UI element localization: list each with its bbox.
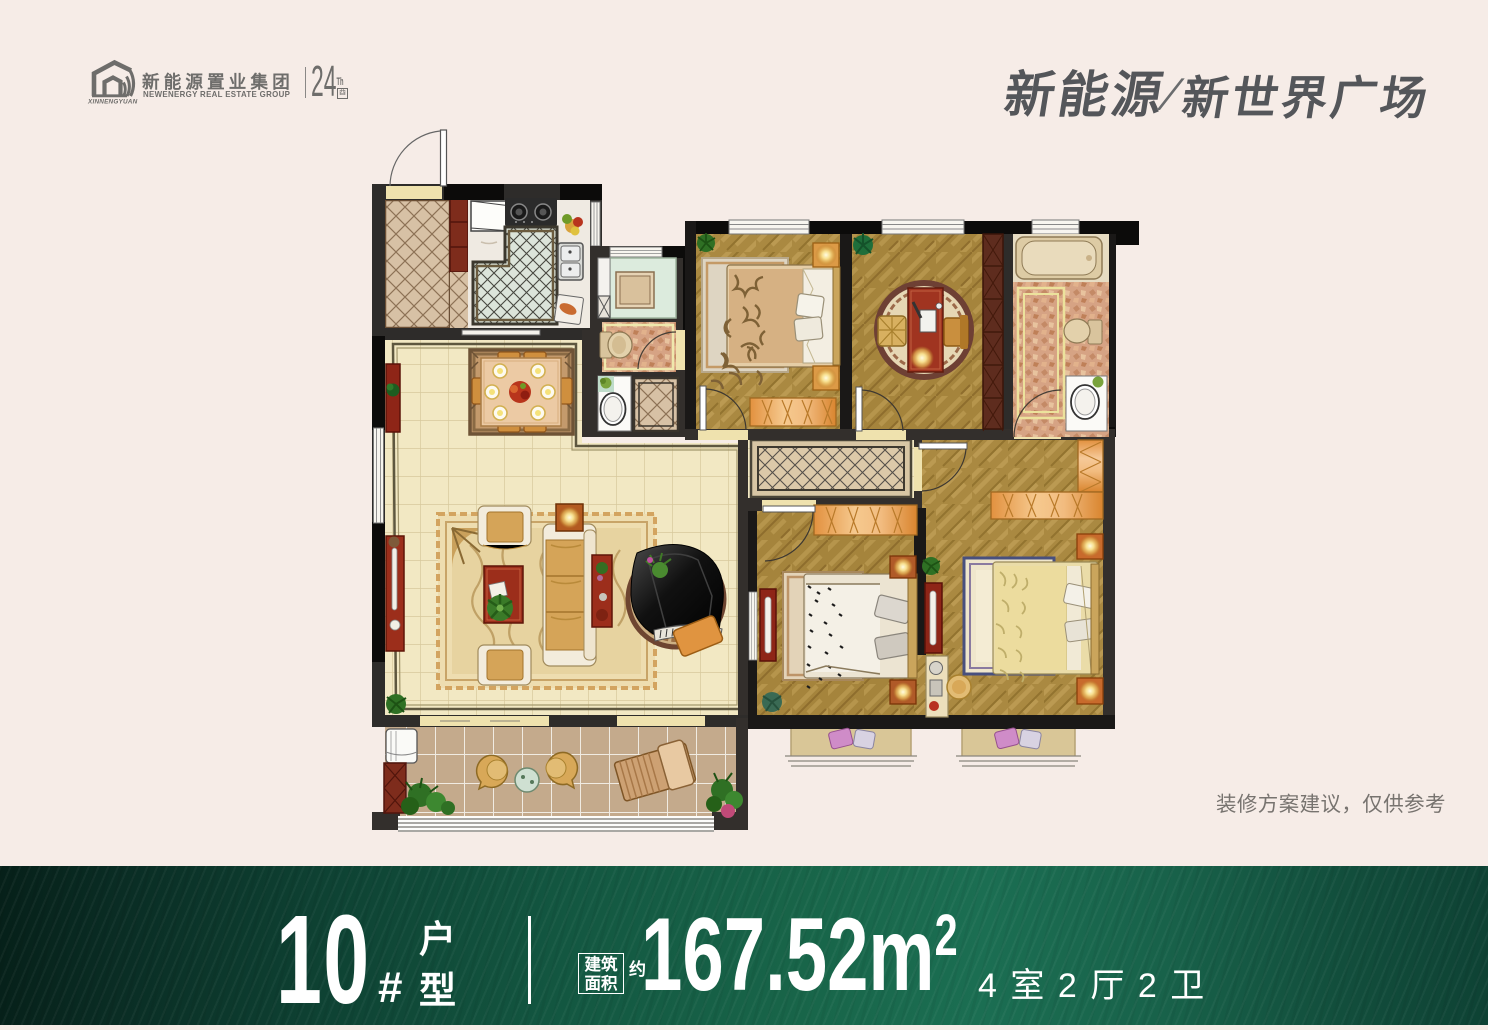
svg-text:XINNENGYUAN: XINNENGYUAN (87, 99, 138, 106)
